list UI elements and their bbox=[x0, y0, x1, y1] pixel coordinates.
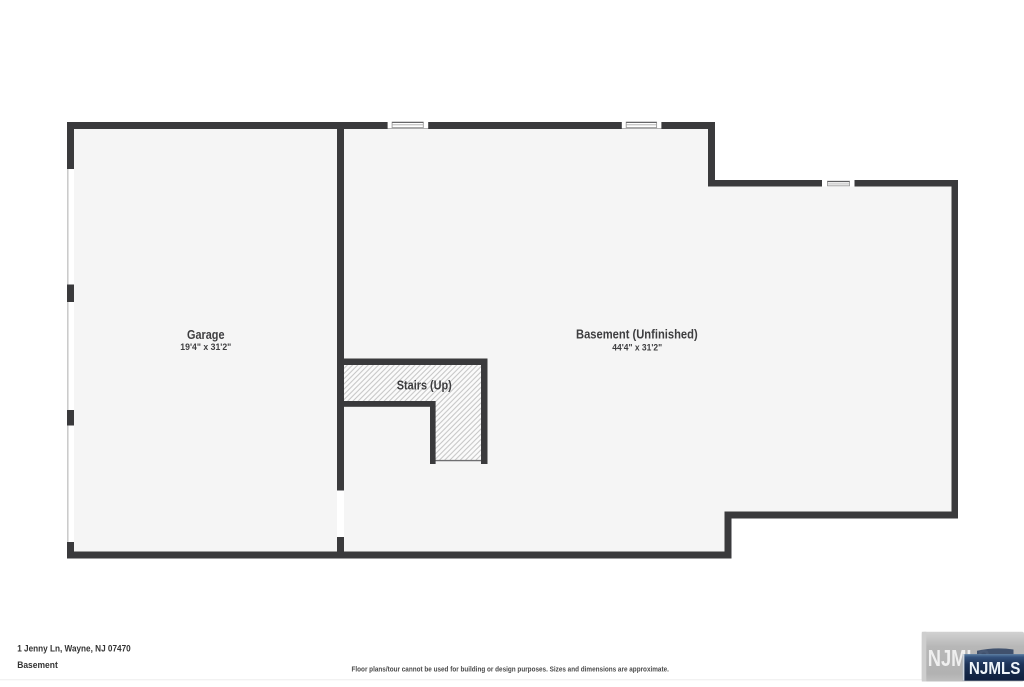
svg-text:44'4" x 31'2": 44'4" x 31'2" bbox=[612, 342, 662, 352]
svg-text:Stairs (Up): Stairs (Up) bbox=[397, 378, 452, 392]
svg-text:Floor plans/tour cannot be use: Floor plans/tour cannot be used for buil… bbox=[352, 666, 669, 673]
svg-text:Garage: Garage bbox=[187, 328, 225, 342]
svg-text:Basement: Basement bbox=[17, 660, 58, 670]
svg-text:Basement (Unfinished): Basement (Unfinished) bbox=[576, 328, 698, 342]
svg-text:19'4" x 31'2": 19'4" x 31'2" bbox=[180, 342, 231, 352]
svg-text:NJMLS: NJMLS bbox=[969, 658, 1021, 678]
svg-text:1 Jenny Ln, Wayne, NJ 07470: 1 Jenny Ln, Wayne, NJ 07470 bbox=[17, 644, 131, 654]
